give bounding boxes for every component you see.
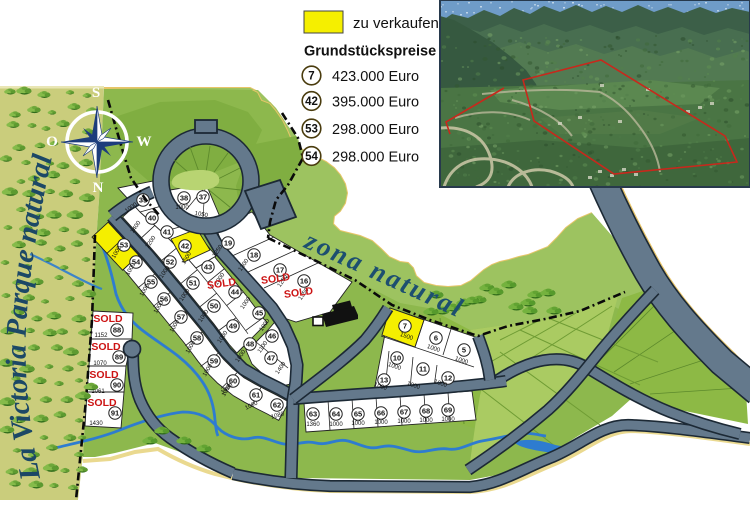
svg-text:SOLD: SOLD bbox=[87, 397, 117, 409]
svg-text:44: 44 bbox=[231, 288, 240, 297]
svg-text:41: 41 bbox=[163, 228, 171, 237]
svg-text:43: 43 bbox=[204, 263, 212, 272]
svg-text:SOLD: SOLD bbox=[93, 313, 123, 325]
svg-text:46: 46 bbox=[268, 332, 276, 341]
svg-text:SOLD: SOLD bbox=[91, 341, 121, 353]
svg-text:54: 54 bbox=[305, 151, 318, 163]
svg-text:65: 65 bbox=[354, 410, 362, 419]
svg-text:423.000 Euro: 423.000 Euro bbox=[332, 69, 419, 85]
svg-text:62: 62 bbox=[273, 401, 281, 410]
svg-text:68: 68 bbox=[422, 407, 430, 416]
svg-text:1360: 1360 bbox=[306, 422, 320, 428]
svg-text:1070: 1070 bbox=[93, 361, 107, 367]
svg-text:7: 7 bbox=[403, 322, 407, 331]
svg-text:1000: 1000 bbox=[175, 205, 189, 211]
svg-text:42: 42 bbox=[305, 96, 318, 108]
svg-text:40: 40 bbox=[148, 214, 156, 223]
svg-text:1000: 1000 bbox=[419, 418, 433, 424]
svg-text:48: 48 bbox=[246, 340, 254, 349]
svg-text:12: 12 bbox=[444, 374, 452, 383]
svg-text:49: 49 bbox=[229, 322, 237, 331]
svg-text:395.000 Euro: 395.000 Euro bbox=[332, 95, 419, 111]
svg-text:42: 42 bbox=[181, 242, 189, 251]
svg-text:59: 59 bbox=[210, 357, 218, 366]
svg-text:88: 88 bbox=[113, 326, 121, 335]
svg-text:S: S bbox=[92, 85, 100, 101]
svg-text:91: 91 bbox=[111, 409, 119, 418]
svg-text:61: 61 bbox=[252, 391, 260, 400]
svg-text:1000: 1000 bbox=[397, 419, 411, 425]
svg-text:Grundstückspreise: Grundstückspreise bbox=[304, 44, 436, 60]
svg-text:50: 50 bbox=[210, 302, 218, 311]
svg-text:38: 38 bbox=[180, 194, 188, 203]
svg-text:19: 19 bbox=[224, 239, 232, 248]
svg-text:1000: 1000 bbox=[351, 421, 365, 427]
svg-text:N: N bbox=[93, 180, 104, 196]
svg-text:298.000 Euro: 298.000 Euro bbox=[332, 122, 419, 138]
svg-text:298.000 Euro: 298.000 Euro bbox=[332, 150, 419, 166]
svg-text:37: 37 bbox=[199, 193, 207, 202]
svg-text:1000: 1000 bbox=[374, 420, 388, 426]
svg-text:11: 11 bbox=[419, 365, 427, 374]
svg-text:6: 6 bbox=[434, 334, 438, 343]
svg-text:1000: 1000 bbox=[329, 422, 343, 428]
svg-text:66: 66 bbox=[377, 409, 385, 418]
svg-text:69: 69 bbox=[444, 406, 452, 415]
svg-text:7: 7 bbox=[308, 71, 314, 83]
svg-text:18: 18 bbox=[250, 251, 258, 260]
svg-text:1152: 1152 bbox=[95, 333, 109, 339]
svg-text:45: 45 bbox=[255, 309, 263, 318]
svg-text:57: 57 bbox=[177, 313, 185, 322]
svg-text:10: 10 bbox=[393, 354, 401, 363]
svg-text:SOLD: SOLD bbox=[89, 369, 119, 381]
svg-text:W: W bbox=[137, 134, 152, 150]
svg-text:67: 67 bbox=[400, 408, 408, 417]
svg-text:zu verkaufen: zu verkaufen bbox=[353, 15, 439, 32]
svg-text:52: 52 bbox=[166, 258, 174, 267]
svg-text:16: 16 bbox=[300, 277, 308, 286]
svg-text:63: 63 bbox=[309, 410, 317, 419]
svg-text:1430: 1430 bbox=[89, 421, 103, 427]
svg-text:51: 51 bbox=[189, 279, 197, 288]
svg-text:O: O bbox=[46, 134, 58, 150]
svg-text:58: 58 bbox=[193, 334, 201, 343]
svg-text:47: 47 bbox=[267, 354, 275, 363]
svg-text:1000: 1000 bbox=[441, 417, 455, 423]
svg-text:5: 5 bbox=[462, 346, 466, 355]
svg-text:89: 89 bbox=[115, 353, 123, 362]
svg-text:53: 53 bbox=[305, 124, 318, 136]
svg-text:90: 90 bbox=[113, 381, 121, 390]
svg-text:64: 64 bbox=[332, 410, 341, 419]
